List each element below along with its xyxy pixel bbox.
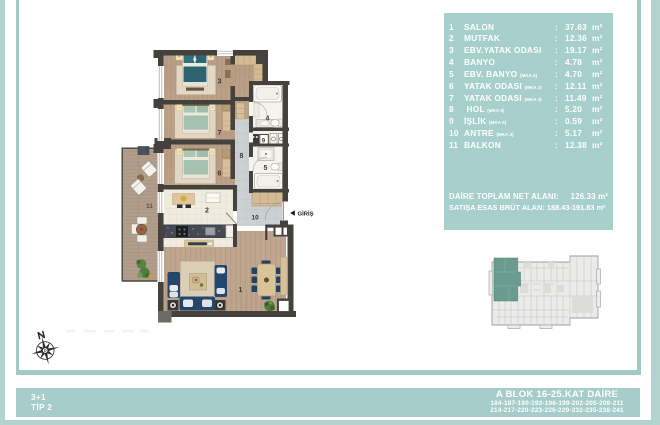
svg-text:6: 6 [218, 171, 222, 178]
svg-text:5: 5 [264, 165, 268, 172]
svg-text:7: 7 [218, 130, 222, 137]
svg-text:1: 1 [239, 287, 243, 294]
svg-text:GİRİŞ: GİRİŞ [298, 211, 314, 218]
svg-text:8: 8 [240, 153, 244, 160]
svg-text:2: 2 [205, 208, 209, 215]
svg-text:10: 10 [252, 215, 260, 222]
svg-text:3: 3 [218, 79, 222, 86]
svg-text:4: 4 [266, 116, 270, 123]
svg-text:11: 11 [146, 203, 153, 210]
